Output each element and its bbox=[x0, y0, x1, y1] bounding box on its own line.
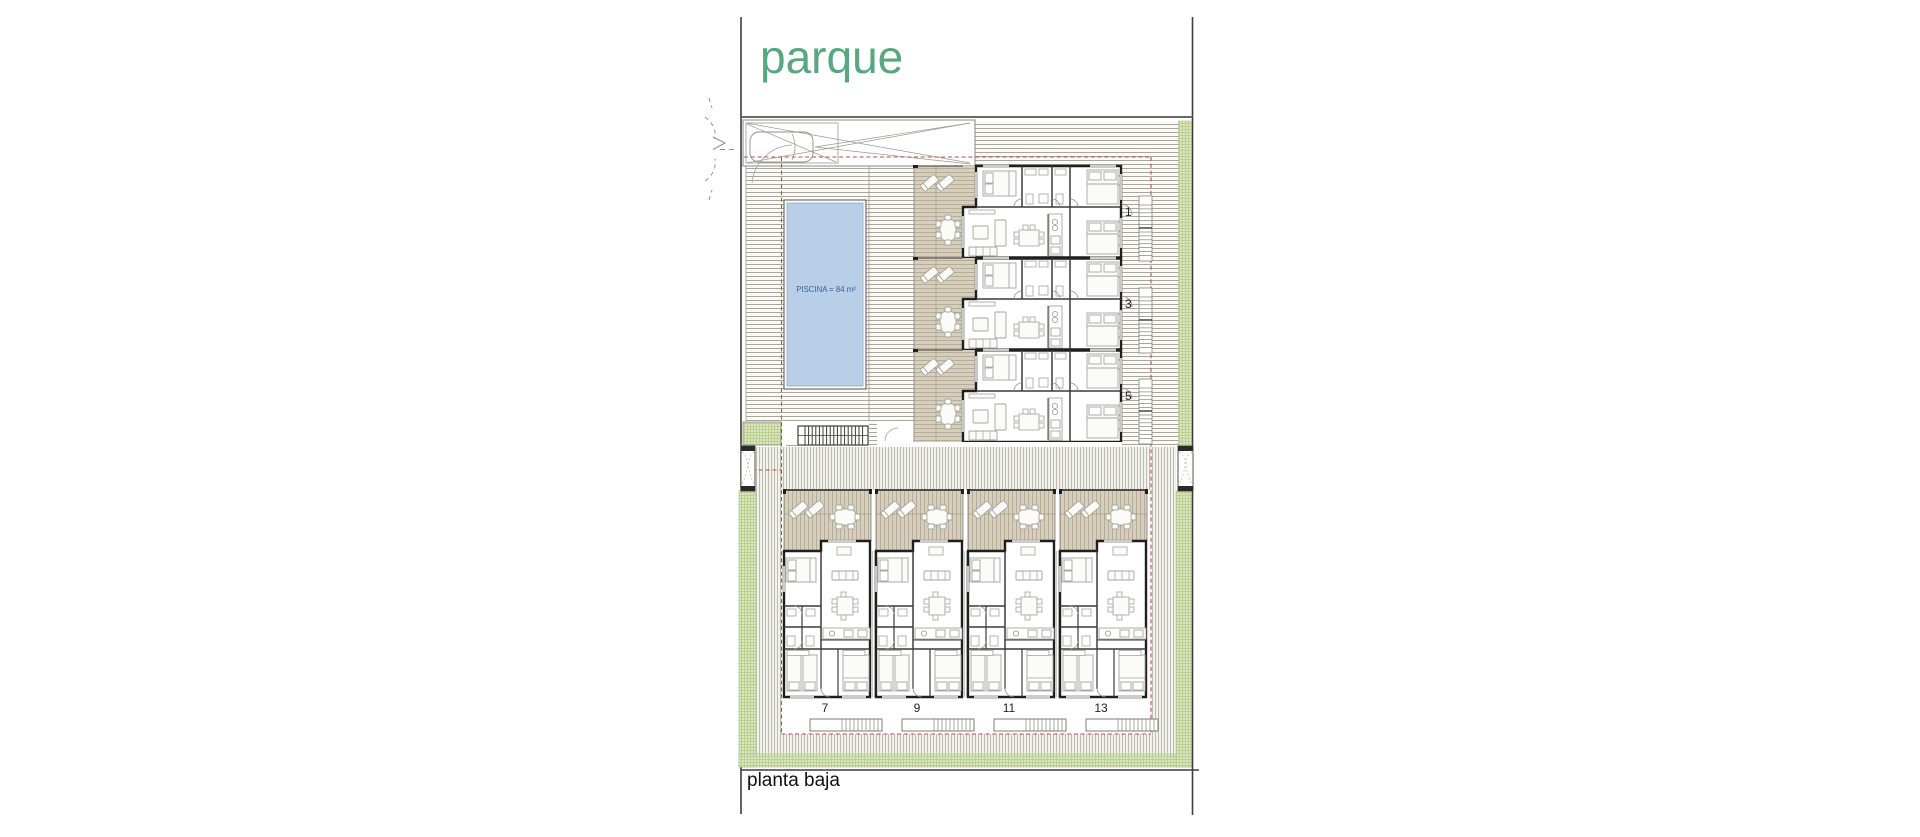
svg-text:5: 5 bbox=[1125, 389, 1132, 403]
svg-text:PISCINA = 84 m²: PISCINA = 84 m² bbox=[796, 285, 856, 294]
svg-text:1: 1 bbox=[1125, 205, 1132, 219]
svg-text:7: 7 bbox=[822, 701, 829, 715]
svg-text:13: 13 bbox=[1094, 701, 1108, 715]
svg-text:parque: parque bbox=[760, 31, 903, 83]
svg-text:11: 11 bbox=[1003, 701, 1016, 715]
svg-text:3: 3 bbox=[1125, 297, 1132, 311]
svg-text:9: 9 bbox=[914, 701, 921, 715]
svg-text:planta baja: planta baja bbox=[747, 770, 840, 791]
